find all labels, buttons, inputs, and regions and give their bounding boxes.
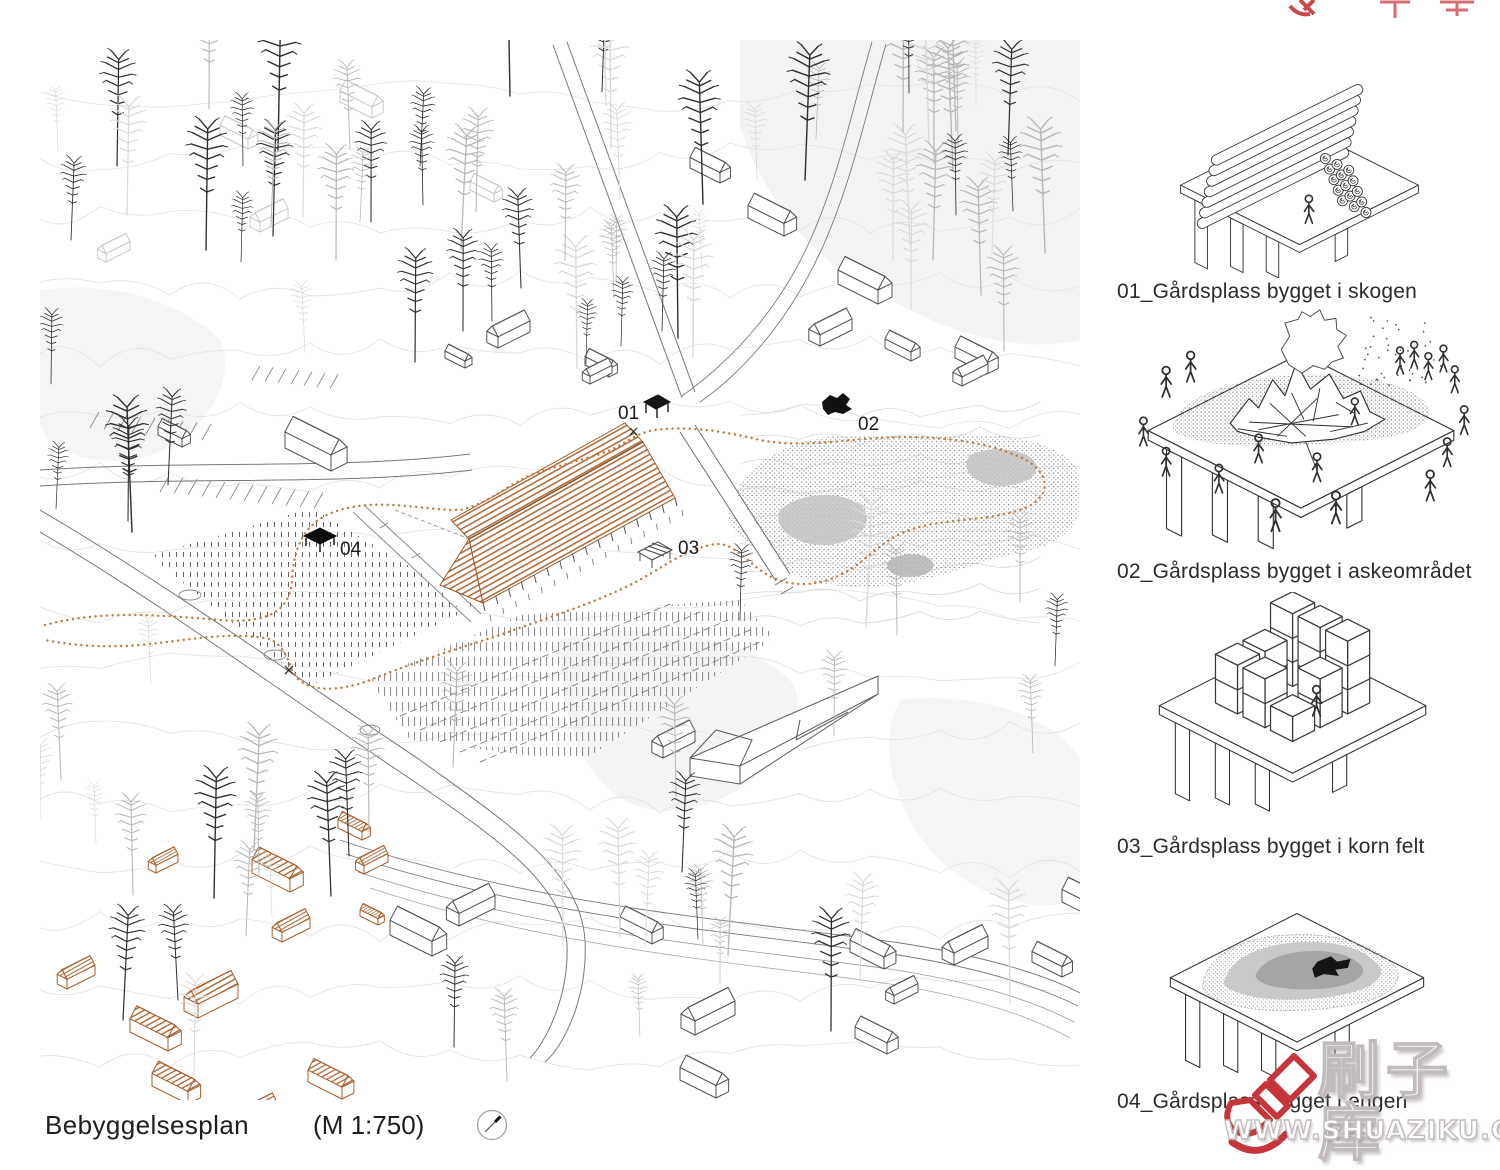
main-building <box>440 423 675 603</box>
plan-marker-structure-03 <box>638 542 672 568</box>
plan-marker-structure-01 <box>644 395 670 418</box>
plan-marker-03-label: 03 <box>678 538 699 559</box>
legend-illustration-timber-stack <box>1147 50 1452 278</box>
drawing-title-block: Bebyggelsesplan (M 1:750) <box>45 1105 512 1145</box>
watermark: 刷子库 WWW.SHUAZIKU.COM <box>1222 1044 1494 1164</box>
legend-column: 01_Gårdsplass bygget i skogen 02_Gårdspl… <box>1117 40 1487 1140</box>
north-arrow-icon <box>472 1105 512 1145</box>
watermark-top-fragment <box>1260 0 1500 28</box>
legend-illustration-hay-bales <box>1132 592 1462 830</box>
plan-marker-04-label: 04 <box>340 539 362 560</box>
plan-marker-01-label: 01 <box>618 403 639 424</box>
legend-caption: 02_Gårdsplass bygget i askeområdet <box>1117 560 1472 584</box>
drawing-title: Bebyggelsesplan <box>45 1110 249 1141</box>
legend-caption: 03_Gårdsplass bygget i korn felt <box>1117 835 1425 859</box>
site-plan-drawing: 01 02 03 04 <box>40 40 1080 1100</box>
presentation-board: 01 02 03 04 Bebyggelsesplan (M 1:750) 01… <box>0 0 1500 1170</box>
plan-marker-02-label: 02 <box>858 414 879 435</box>
drawing-scale: (M 1:750) <box>313 1110 424 1141</box>
legend-caption: 01_Gårdsplass bygget i skogen <box>1117 280 1417 304</box>
watermark-url: WWW.SHUAZIKU.COM <box>1224 1116 1500 1146</box>
legend-illustration-bonfire <box>1117 308 1485 558</box>
